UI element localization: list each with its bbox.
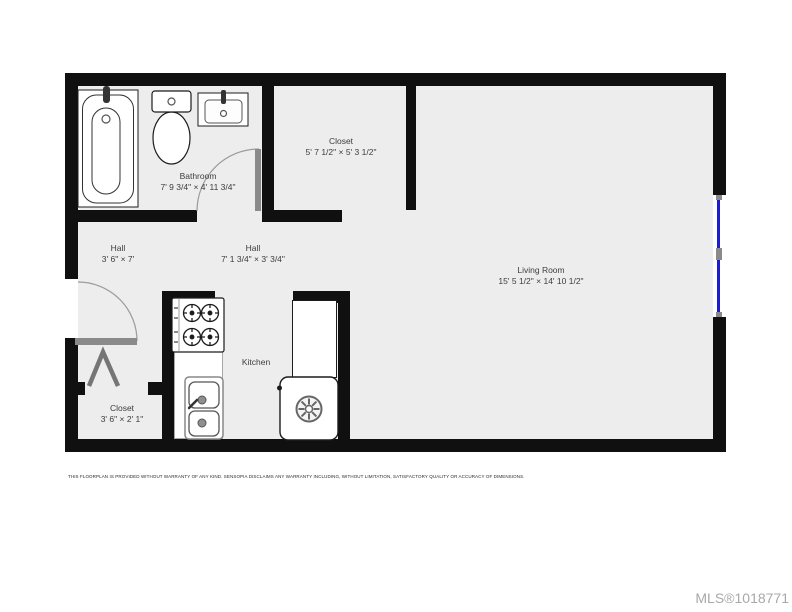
room-name: Hall [221,243,285,254]
floorplan-page: Bathroom 7' 9 3/4" × 4' 11 3/4" Closet 5… [0,0,792,612]
label-hall-left: Hall 3' 6" × 7' [102,243,135,265]
bathtub-drain [102,115,110,123]
toilet [149,88,194,168]
room-name: Closet [101,403,144,414]
kitchen-sink [183,375,225,442]
washer-latch [277,386,282,391]
bathroom-sink [196,88,254,130]
toilet-flush-button [168,98,175,105]
bathroom-door-leaf [255,149,261,211]
room-name: Living Room [498,265,583,276]
room-dims: 5' 7 1/2" × 5' 3 1/2" [306,147,377,158]
sink-faucet [221,90,226,104]
bathtub [76,86,140,209]
toilet-bowl [153,112,190,164]
entry-door-leaf [75,338,137,345]
kitchen-sink-drain-2 [198,419,206,427]
room-dims: 3' 6" × 7' [102,254,135,265]
room-dims: 3' 6" × 2' 1" [101,414,144,425]
room-name: Kitchen [242,357,270,368]
kitchen-sink-drain-1 [198,396,206,404]
bifold-door [89,352,118,386]
room-dims: 7' 9 3/4" × 4' 11 3/4" [160,182,235,193]
room-name: Bathroom [160,171,235,182]
sink-drain [221,111,227,117]
disclaimer-text: THIS FLOORPLAN IS PROVIDED WITHOUT WARRA… [68,474,518,479]
bathtub-outline [78,90,138,207]
bathtub-faucet [103,86,110,103]
label-closet-bottom: Closet 3' 6" × 2' 1" [101,403,144,425]
room-dims: 15' 5 1/2" × 14' 10 1/2" [498,276,583,287]
room-name: Closet [306,136,377,147]
label-hall-mid: Hall 7' 1 3/4" × 3' 3/4" [221,243,285,265]
label-bathroom: Bathroom 7' 9 3/4" × 4' 11 3/4" [160,171,235,193]
label-living-room: Living Room 15' 5 1/2" × 14' 10 1/2" [498,265,583,287]
mls-number: MLS®1018771 [695,590,789,606]
label-closet-top: Closet 5' 7 1/2" × 5' 3 1/2" [306,136,377,158]
entry-door-arc [78,282,137,341]
washer [276,375,342,443]
label-kitchen: Kitchen [242,357,270,368]
room-name: Hall [102,243,135,254]
washer-hub [306,406,313,413]
room-dims: 7' 1 3/4" × 3' 3/4" [221,254,285,265]
stove [170,296,228,356]
